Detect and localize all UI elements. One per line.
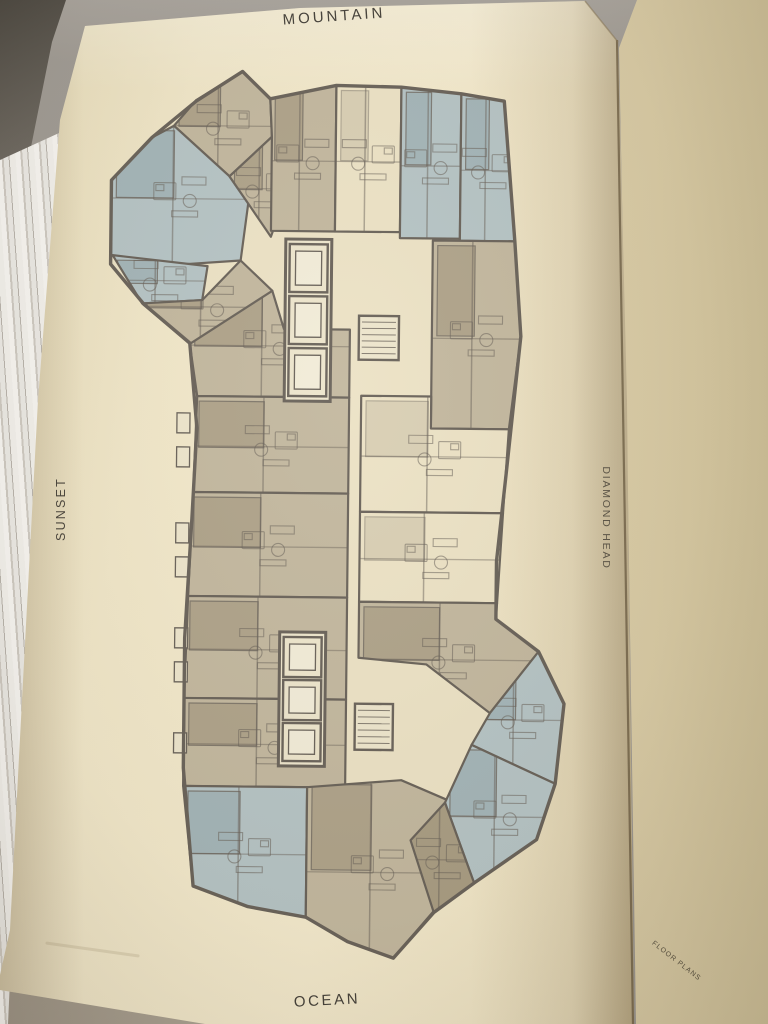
orientation-label-sunset: SUNSET <box>54 444 68 574</box>
unit-right-upper-unit <box>431 240 522 429</box>
unit-left-unit-a <box>193 396 349 494</box>
edge-box <box>176 523 189 543</box>
unit-bottom-left-unit <box>182 786 307 917</box>
book-photo: FLOOR PLANS MOUNTAIN SUNSET DIAMOND HEAD… <box>0 0 768 1024</box>
edge-box <box>175 557 188 577</box>
elevator-cab <box>289 687 315 713</box>
edge-box <box>176 447 189 467</box>
elevator-cab <box>288 730 314 754</box>
elevator-cab <box>295 303 321 337</box>
elevator-cab <box>294 355 320 389</box>
unit-left-unit-b <box>188 492 348 598</box>
unit-top-unit-a <box>269 85 337 232</box>
elevator-cab <box>295 251 321 285</box>
page-section-label: FLOOR PLANS <box>650 940 733 1007</box>
unit-right-mid-unit-b <box>359 512 503 603</box>
orientation-label-diamond-head: DIAMOND HEAD <box>600 452 612 584</box>
unit-top-unit-c <box>400 87 462 239</box>
elevator-cab <box>289 644 315 670</box>
edge-box <box>177 413 190 433</box>
unit-top-unit-b <box>335 85 402 232</box>
